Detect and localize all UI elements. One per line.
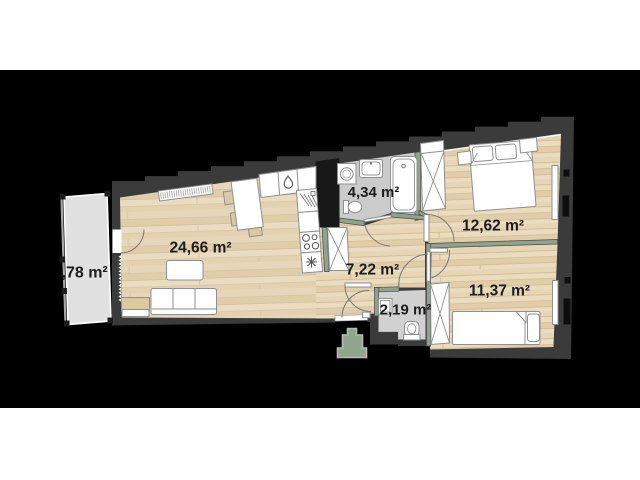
svg-text:2,19 m²: 2,19 m² bbox=[380, 302, 432, 319]
svg-text:24,66 m²: 24,66 m² bbox=[169, 240, 231, 257]
svg-text:,78 m²: ,78 m² bbox=[62, 265, 108, 282]
svg-text:12,62 m²: 12,62 m² bbox=[462, 218, 524, 235]
svg-text:11,37 m²: 11,37 m² bbox=[469, 283, 530, 300]
svg-text:4,34 m²: 4,34 m² bbox=[348, 184, 400, 201]
svg-text:7,22 m²: 7,22 m² bbox=[346, 262, 399, 279]
